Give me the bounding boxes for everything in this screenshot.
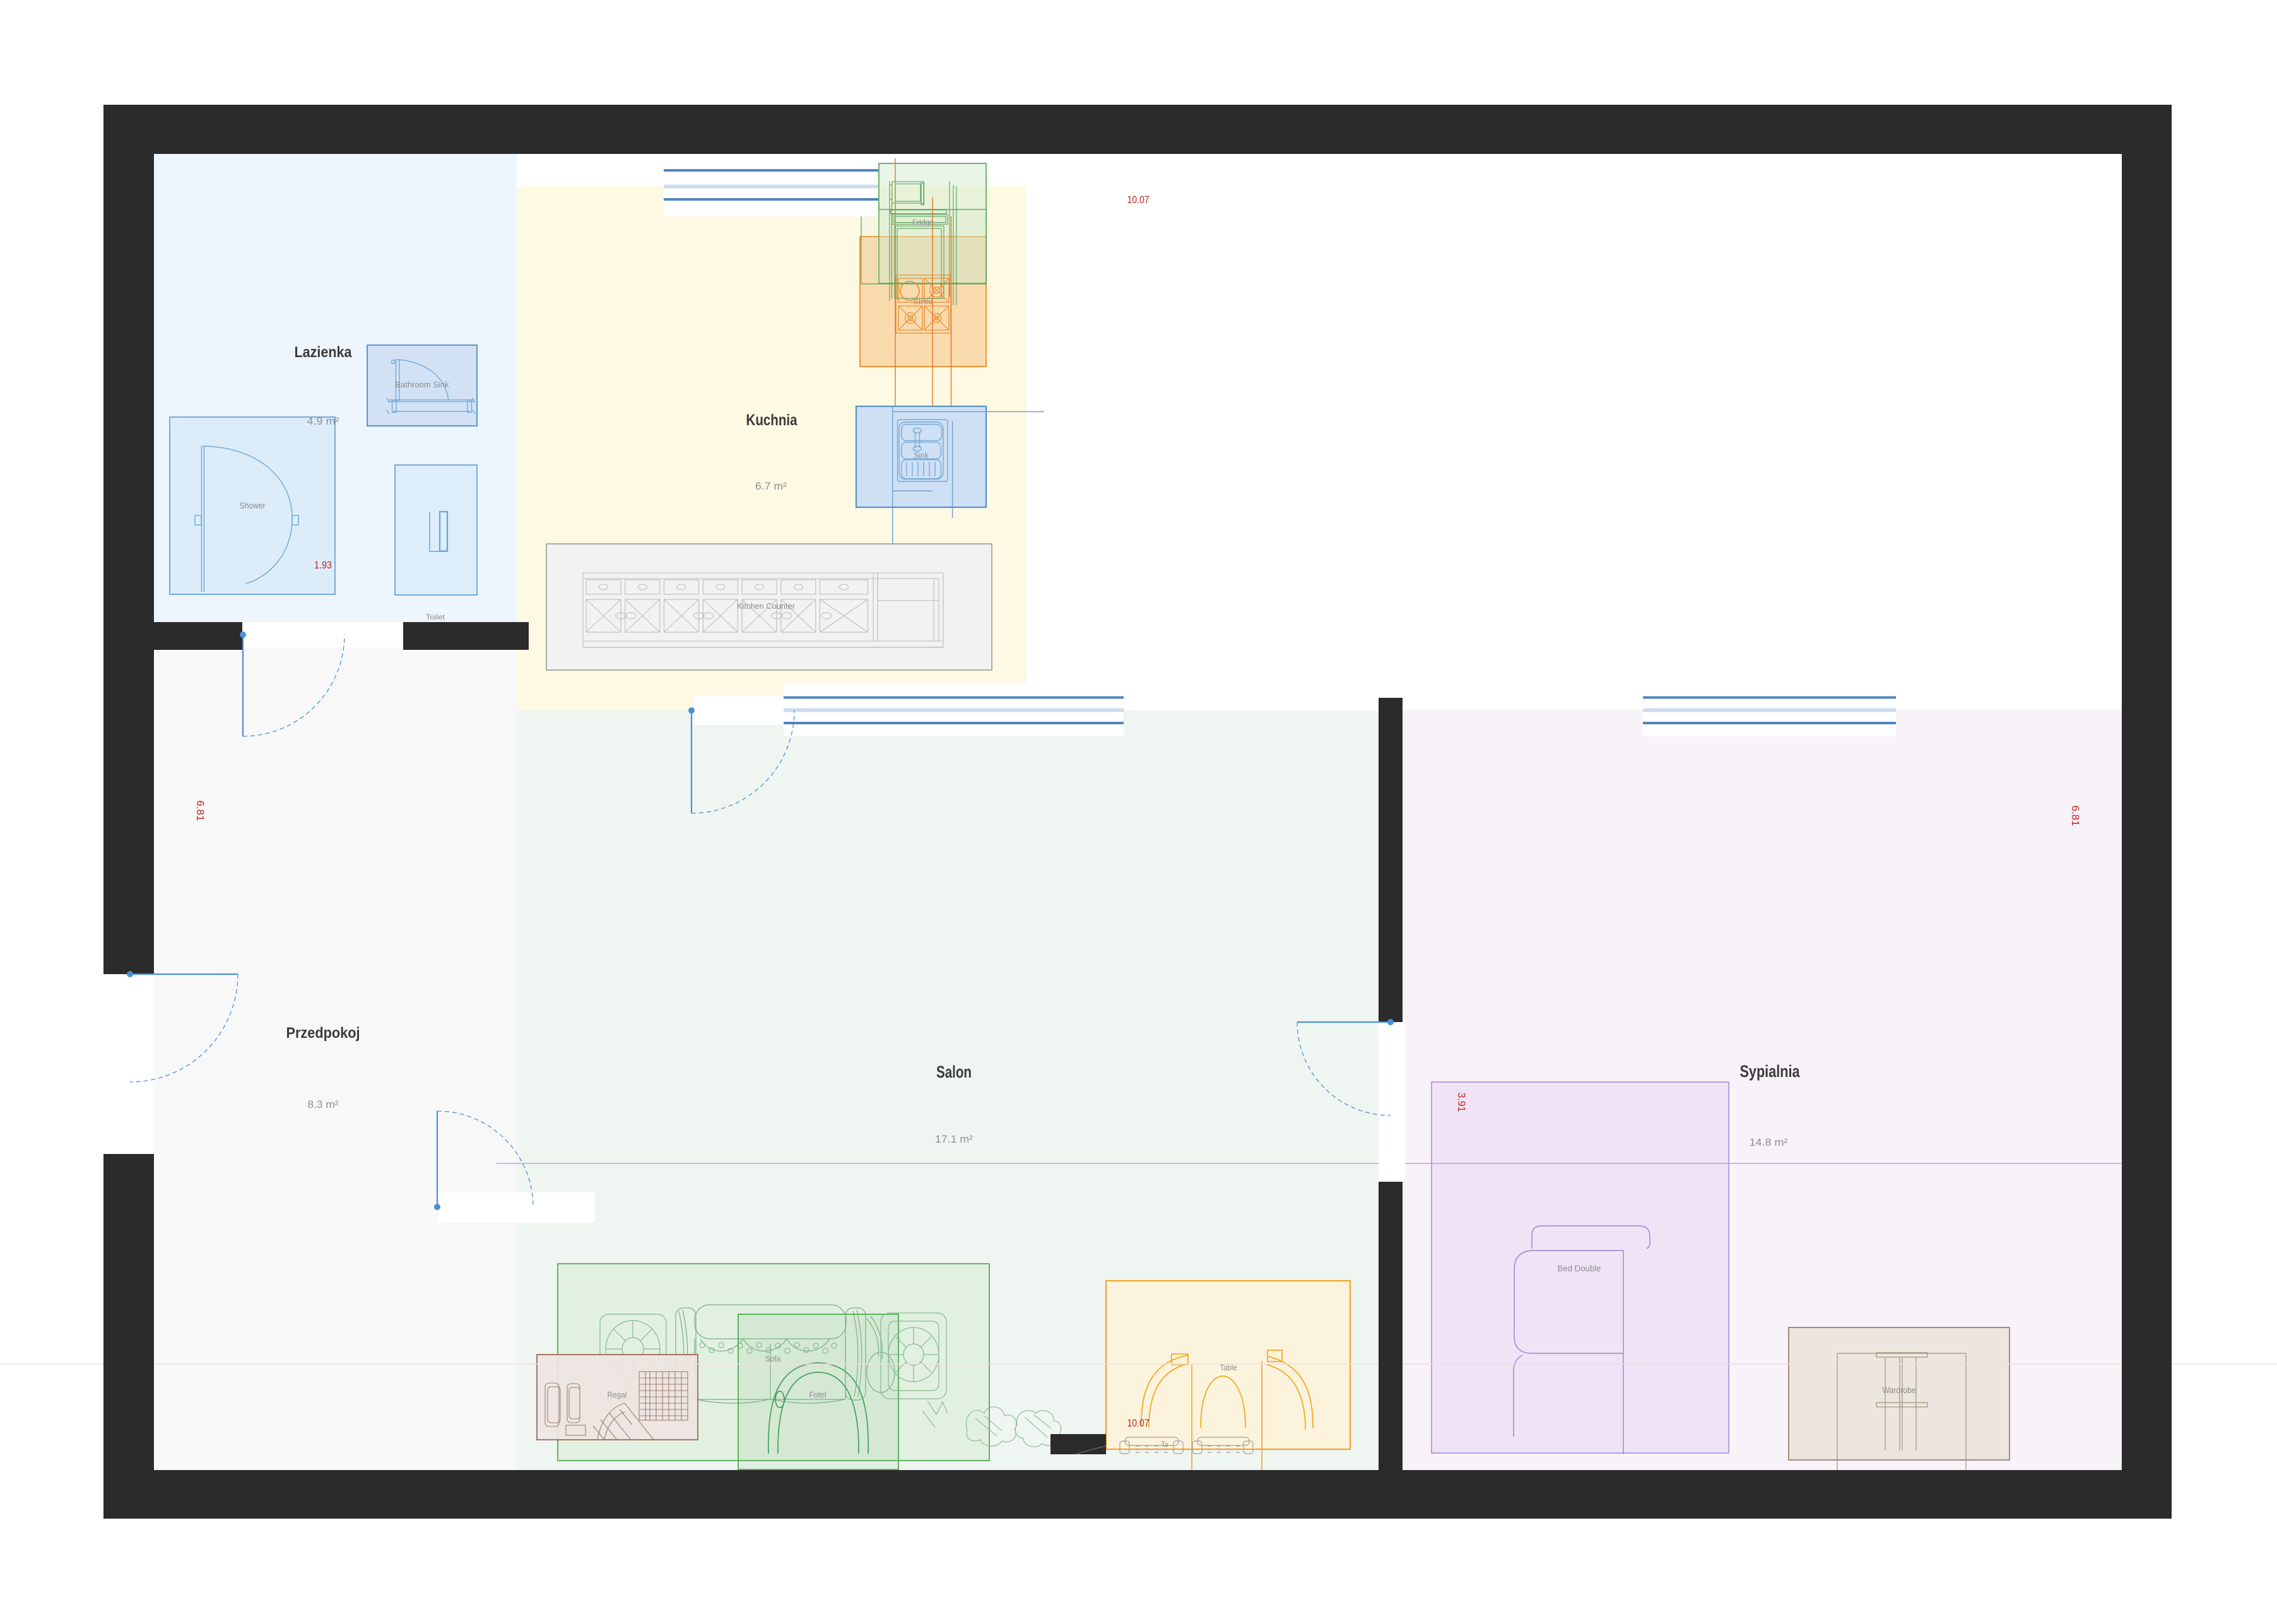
svg-text:Table: Table bbox=[1220, 1363, 1237, 1372]
svg-text:Sypialnia: Sypialnia bbox=[1740, 1062, 1801, 1081]
svg-text:10.07: 10.07 bbox=[1127, 1417, 1150, 1429]
svg-text:Kitchen Counter: Kitchen Counter bbox=[737, 601, 796, 611]
svg-text:Stove: Stove bbox=[914, 297, 933, 306]
svg-text:Regal: Regal bbox=[608, 1390, 627, 1399]
svg-text:Sofa: Sofa bbox=[765, 1354, 782, 1363]
svg-text:8.3 m²: 8.3 m² bbox=[308, 1098, 339, 1110]
svg-text:10.07: 10.07 bbox=[1127, 194, 1150, 206]
svg-text:Lazienka: Lazienka bbox=[295, 344, 353, 361]
svg-text:6.81: 6.81 bbox=[194, 801, 206, 821]
svg-text:Tv: Tv bbox=[1162, 1440, 1168, 1449]
svg-text:Sink: Sink bbox=[914, 450, 929, 460]
svg-text:17.1 m²: 17.1 m² bbox=[935, 1133, 973, 1145]
svg-text:14.8 m²: 14.8 m² bbox=[1750, 1136, 1788, 1148]
svg-text:Bathroom Sink: Bathroom Sink bbox=[396, 380, 449, 389]
svg-text:Toilet: Toilet bbox=[426, 613, 445, 621]
svg-text:Salon: Salon bbox=[936, 1062, 972, 1081]
svg-text:1.93: 1.93 bbox=[314, 559, 332, 571]
svg-text:Przedpokoj: Przedpokoj bbox=[286, 1025, 360, 1042]
svg-text:3.91: 3.91 bbox=[1456, 1093, 1468, 1112]
svg-text:Fotel: Fotel bbox=[809, 1390, 827, 1399]
svg-text:Shower: Shower bbox=[240, 500, 266, 510]
svg-text:Bed Double: Bed Double bbox=[1558, 1263, 1601, 1273]
svg-text:6.7 m²: 6.7 m² bbox=[755, 480, 787, 492]
svg-text:4.9 m²: 4.9 m² bbox=[307, 415, 339, 427]
svg-text:6.81: 6.81 bbox=[2069, 806, 2081, 827]
svg-text:Fridge: Fridge bbox=[912, 218, 934, 227]
svg-text:Kuchnia: Kuchnia bbox=[746, 411, 798, 429]
svg-text:Wardrobe: Wardrobe bbox=[1883, 1385, 1916, 1395]
